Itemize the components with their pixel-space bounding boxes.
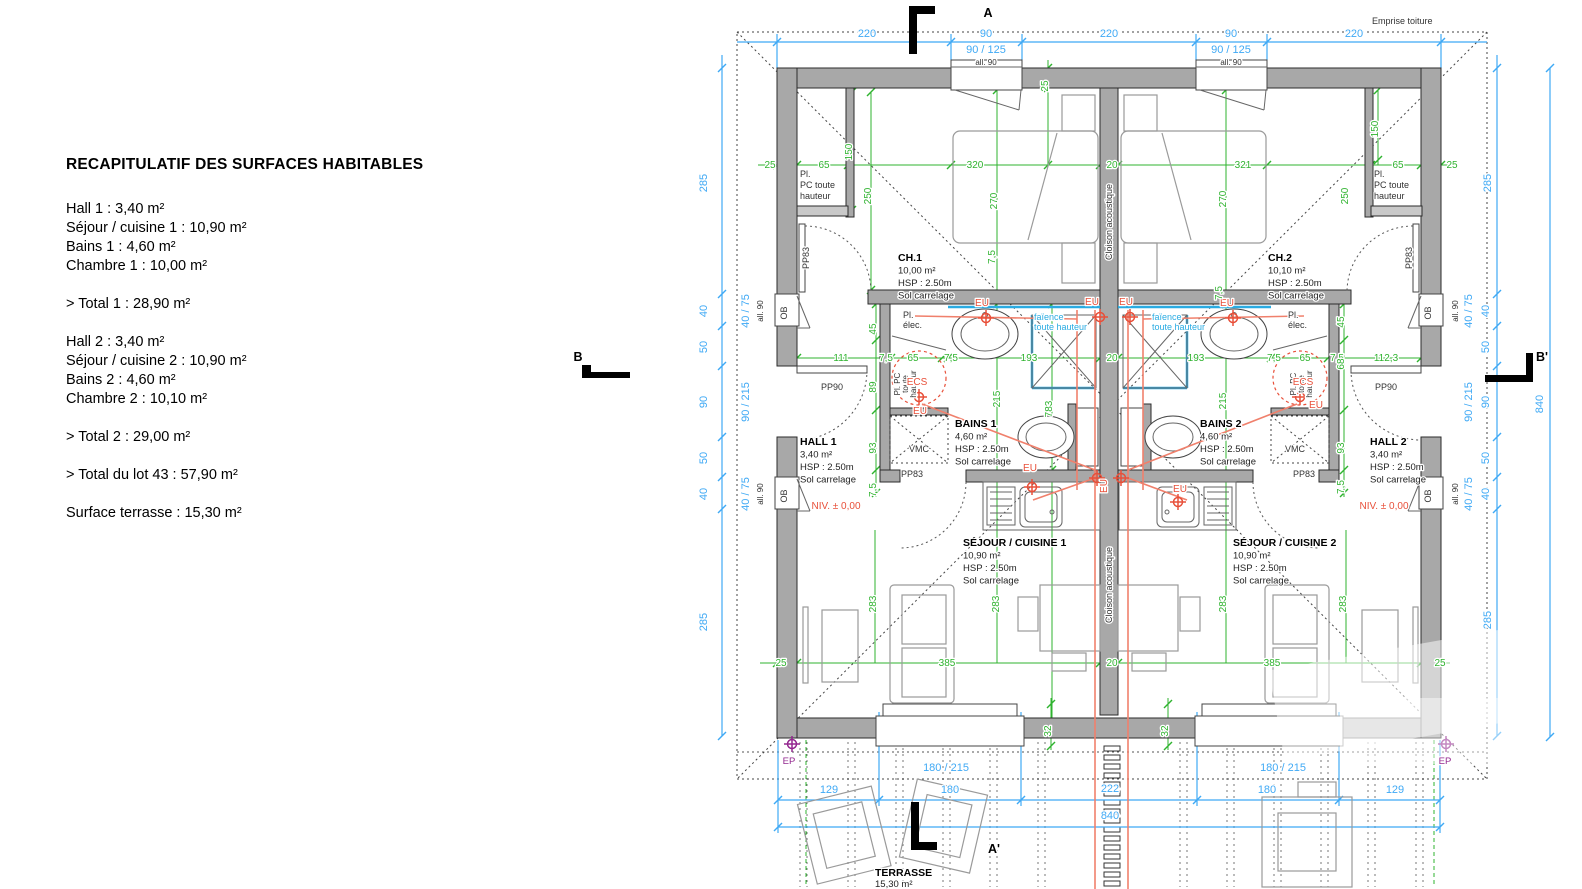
plan-label: 25 <box>1040 80 1051 92</box>
plan-label: 220 <box>1100 28 1118 40</box>
pipe-connection-marker <box>1170 494 1186 510</box>
plan-label: all. 90 <box>1220 58 1242 67</box>
room-ch1: CH.110,00 m²HSP : 2.50mSol carrelage <box>898 252 954 302</box>
plan-label: 180 <box>1258 784 1276 796</box>
plan-label: EU <box>1023 463 1037 474</box>
plan-label: 40 / 75 <box>740 294 752 328</box>
drain-rung <box>1104 854 1120 859</box>
summary-line: Chambre 2 : 10,10 m² <box>66 390 423 409</box>
summary-title: RECAPITULATIF DES SURFACES HABITABLES <box>66 156 423 174</box>
plan-label: 50 <box>698 341 710 353</box>
toilet-2 <box>1121 408 1143 466</box>
plan-label: all. 90 <box>975 58 997 67</box>
tv-1 <box>803 607 808 683</box>
plan-label: Pl.élec. <box>903 310 922 330</box>
plan-label: 385 <box>1264 658 1281 669</box>
plan-label: 90 / 215 <box>740 382 752 422</box>
plan-label: 90 / 125 <box>966 44 1006 56</box>
plan-label: 250 <box>1340 187 1351 204</box>
plan-label: 50 <box>1480 341 1492 353</box>
plan-label: 45 <box>1336 316 1347 328</box>
plan-label: OB <box>1423 489 1433 502</box>
plan-label: 180 / 215 <box>923 762 969 774</box>
plan-label: Cloison acoustique <box>1104 184 1114 260</box>
plan-label: 25 <box>775 658 787 669</box>
plan-label: PP90 <box>1375 382 1397 392</box>
bath-door-left <box>900 482 966 548</box>
plan-label: EP <box>1439 756 1452 767</box>
room-bains1: BAINS 14,60 m²HSP : 2.50mSol carrelage <box>955 418 1011 468</box>
terrace-table <box>1262 797 1352 887</box>
plan-label: 40 <box>698 488 710 500</box>
plan-label: PP83 <box>801 247 811 269</box>
summary-line: Bains 1 : 4,60 m² <box>66 238 423 257</box>
plan-label: EU <box>1173 484 1187 495</box>
plan-label: 320 <box>967 160 984 171</box>
plan-label: 93 <box>868 442 879 454</box>
room-hall2: HALL 23,40 m²HSP : 2.50mSol carrelage <box>1370 436 1426 486</box>
plan-label: all. 90 <box>756 300 765 322</box>
plan-label: 112,3 <box>1374 353 1399 364</box>
plan-label: 283 <box>1218 595 1229 612</box>
section-marker-b: B <box>573 350 582 364</box>
drain-rung <box>1104 836 1120 841</box>
summary-terrace: Surface terrasse : 15,30 m² <box>66 504 423 523</box>
plan-label: NIV. ± 0,00 <box>1359 501 1408 512</box>
plan-label: 285 <box>698 613 710 631</box>
plan-label: EU <box>1119 297 1133 308</box>
plan-label: 65 <box>1392 160 1404 171</box>
plan-label: EU <box>1309 400 1323 411</box>
plan-label: EU <box>913 406 927 417</box>
plan-label: 840 <box>1534 395 1546 413</box>
room-sejour1: SÉJOUR / CUISINE 110,90 m²HSP : 2.50mSol… <box>963 536 1066 587</box>
summary-total-2: > Total 2 : 29,00 m² <box>66 428 423 447</box>
plan-label: 270 <box>989 192 1000 209</box>
vmc-1 <box>890 416 948 463</box>
plan-label: 7,5 <box>987 250 998 264</box>
plan-label: OB <box>779 489 789 502</box>
plan-label: PP83 <box>1293 469 1315 479</box>
plan-label: 783 <box>1044 400 1055 417</box>
plan-label: 32 <box>1160 725 1171 737</box>
plan-label: EU <box>975 298 989 309</box>
plan-label: all. 90 <box>756 483 765 505</box>
summary-total-lot: > Total du lot 43 : 57,90 m² <box>66 466 423 485</box>
plan-label: 129 <box>1386 784 1404 796</box>
plan-label: Emprise toiture <box>1372 16 1433 26</box>
plan-label: 40 / 75 <box>1463 294 1475 328</box>
drain-rung <box>1104 764 1120 769</box>
plan-label: 40 <box>1480 305 1492 317</box>
dining-table-2 <box>1118 585 1178 651</box>
plan-label: 90 <box>1225 28 1237 40</box>
drain-rung <box>1104 827 1120 832</box>
plan-label: 7,5 <box>879 353 893 364</box>
plan-label: 285 <box>698 174 710 192</box>
plan-label: VMC <box>909 444 930 454</box>
plan-label: 150 <box>1370 120 1381 137</box>
bed-2 <box>1121 131 1266 243</box>
summary-total-1: > Total 1 : 28,90 m² <box>66 295 423 314</box>
drain-rung <box>1104 755 1120 760</box>
plan-label: 129 <box>820 784 838 796</box>
plan-label: 215 <box>992 390 1003 407</box>
room-terrasse: TERRASSE15,30 m² <box>875 867 932 889</box>
plan-label: 90 / 125 <box>1211 44 1251 56</box>
plan-label: 193 <box>1188 353 1205 364</box>
plan-label: 90 / 215 <box>1463 382 1475 422</box>
room-ch2: CH.210,10 m²HSP : 2.50mSol carrelage <box>1268 252 1324 302</box>
plan-label: 20 <box>1106 353 1118 364</box>
drain-rung <box>1104 845 1120 850</box>
summary-line: Chambre 1 : 10,00 m² <box>66 257 423 276</box>
plan-label: 193 <box>1021 353 1038 364</box>
plan-label: 270 <box>1218 190 1229 207</box>
plan-label: VMC <box>1285 444 1306 454</box>
plan-label: 7,5 <box>868 483 879 497</box>
plan-label: PP83 <box>1404 247 1414 269</box>
plan-label: 90 <box>1480 396 1492 408</box>
plan-label: Pl.élec. <box>1288 310 1307 330</box>
room-sejour2: SÉJOUR / CUISINE 210,90 m²HSP : 2.50mSol… <box>1233 536 1336 587</box>
plan-label: 250 <box>863 187 874 204</box>
drain-rung <box>1104 872 1120 877</box>
plan-label: 40 <box>698 305 710 317</box>
plan-label: 68 <box>1336 358 1347 370</box>
plan-label: 89 <box>868 381 879 393</box>
plan-label: EP <box>783 756 796 767</box>
plan-label: 840 <box>1101 810 1119 822</box>
plan-label: 7,5 <box>1267 353 1281 364</box>
room-hall1: HALL 13,40 m²HSP : 2.50mSol carrelage <box>800 436 856 486</box>
plan-label: 385 <box>939 658 956 669</box>
plan-label: 90 <box>980 28 992 40</box>
summary-line: Hall 2 : 3,40 m² <box>66 333 423 352</box>
plan-label: 50 <box>1480 452 1492 464</box>
entry-door-right <box>1351 366 1421 373</box>
plan-label: 180 <box>941 784 959 796</box>
plan-label: 20 <box>1106 658 1118 669</box>
room-bains2: BAINS 24,60 m²HSP : 2.50mSol carrelage <box>1200 418 1256 468</box>
plan-label: 150 <box>844 143 855 160</box>
section-marker-a: A <box>983 6 992 20</box>
plan-label: 65 <box>907 353 919 364</box>
plan-label: NIV. ± 0,00 <box>811 501 860 512</box>
plan-label: PP90 <box>821 382 843 392</box>
plan-label: Cloison acoustique <box>1104 547 1114 623</box>
summary-line: Hall 1 : 3,40 m² <box>66 200 423 219</box>
plan-label: 7,5 <box>944 353 958 364</box>
drain-rung <box>1104 773 1120 778</box>
plan-label: 65 <box>818 160 830 171</box>
plan-label: 50 <box>698 452 710 464</box>
plan-label: 25 <box>1446 160 1458 171</box>
summary-line: Séjour / cuisine 1 : 10,90 m² <box>66 219 423 238</box>
plan-label: ECS <box>907 377 928 388</box>
plan-label: 222 <box>1101 783 1119 795</box>
plan-label: Pl.PC toutehauteur <box>1374 169 1409 201</box>
plan-label: 321 <box>1235 160 1252 171</box>
plan-label: 220 <box>1345 28 1363 40</box>
plan-label: 283 <box>868 595 879 612</box>
drain-rung <box>1104 800 1120 805</box>
plan-label: 220 <box>858 28 876 40</box>
summary-line: Séjour / cuisine 2 : 10,90 m² <box>66 352 423 371</box>
entry-door-left <box>797 366 867 373</box>
plan-label: 32 <box>1043 725 1054 737</box>
plan-label: 40 / 75 <box>740 477 752 511</box>
sliding-door-left <box>876 716 1024 746</box>
plan-label: OB <box>1423 306 1433 319</box>
drain-rung <box>1104 863 1120 868</box>
plan-label: 283 <box>991 595 1002 612</box>
plan-label: 180 / 215 <box>1260 762 1306 774</box>
plan-label: Pl.PC toutehauteur <box>800 169 835 201</box>
plan-label: ECS <box>1293 377 1314 388</box>
plan-label: EU <box>1085 297 1099 308</box>
plan-label: 25 <box>764 160 776 171</box>
plan-label: all. 90 <box>1451 483 1460 505</box>
plan-label: 93 <box>1336 442 1347 454</box>
plan-label: 90 <box>698 396 710 408</box>
vmc-2 <box>1271 416 1329 463</box>
section-marker-b-prime: B' <box>1536 350 1548 364</box>
dining-table-1 <box>1040 585 1100 651</box>
plan-label: OB <box>779 306 789 319</box>
pipe-connection-marker <box>1122 309 1138 325</box>
bed-1 <box>953 131 1098 243</box>
plan-label: 40 <box>1480 488 1492 500</box>
plan-label: EU <box>1099 479 1110 493</box>
plan-label: 7,5 <box>1214 286 1225 300</box>
section-marker-a-prime: A' <box>988 842 1000 856</box>
plan-label: 215 <box>1218 392 1229 409</box>
surface-summary-panel: RECAPITULATIF DES SURFACES HABITABLES Ha… <box>66 156 423 523</box>
plan-label: 285 <box>1482 611 1494 629</box>
plan-label: 65 <box>1299 353 1311 364</box>
plan-label: 283 <box>1338 595 1349 612</box>
plan-label: 45 <box>868 323 879 335</box>
plan-label: 111 <box>833 353 849 364</box>
plan-label: faïencetoute hauteur <box>1152 312 1205 332</box>
drain-rung <box>1104 881 1120 886</box>
plan-label: 25 <box>1434 658 1446 669</box>
plan-label: 40 / 75 <box>1463 477 1475 511</box>
summary-line: Bains 2 : 4,60 m² <box>66 371 423 390</box>
tv-cabinet-1 <box>822 610 858 682</box>
plan-label: 285 <box>1482 174 1494 192</box>
plan-label: PP83 <box>901 469 923 479</box>
drain-rung <box>1104 746 1120 751</box>
plan-label: all. 90 <box>1451 300 1460 322</box>
plan-label: 7,5 <box>1336 480 1347 494</box>
plan-label: 20 <box>1106 160 1118 171</box>
